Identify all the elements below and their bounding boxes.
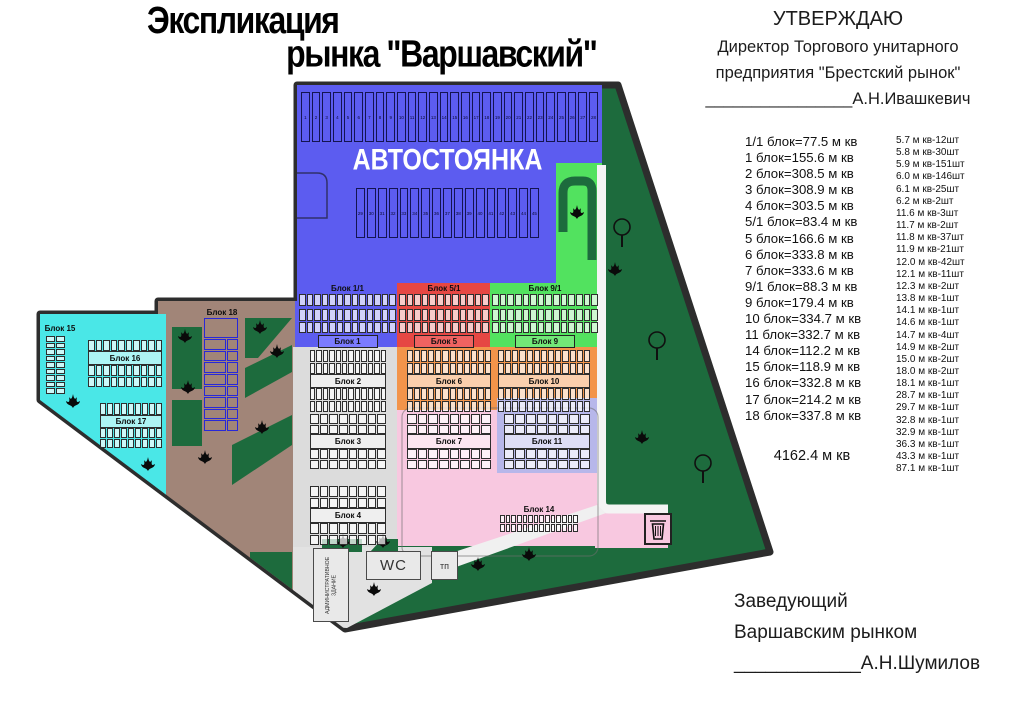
stall-cell <box>418 414 428 424</box>
stall-cell <box>310 460 319 470</box>
stall-cell <box>584 294 591 306</box>
stall-cell <box>141 340 148 351</box>
stall-cell <box>307 322 314 334</box>
stall-cell <box>573 515 578 523</box>
stall-cell <box>407 414 417 424</box>
stall-cell <box>523 309 530 321</box>
stall-cell <box>548 414 558 424</box>
stall-cell <box>310 486 319 497</box>
stall-cell <box>148 377 155 388</box>
stall-cell <box>414 309 421 321</box>
stall-cell <box>227 339 238 350</box>
stall-cell <box>568 515 573 523</box>
block-3: Блок 3 <box>310 414 386 469</box>
stall-cell <box>368 460 377 470</box>
list-line: 14.7 м кв-4шт <box>896 330 965 342</box>
stall-cell <box>526 414 536 424</box>
stall-cell <box>485 350 491 362</box>
stall-cell <box>414 294 421 306</box>
stall-cell <box>339 425 348 435</box>
stall-cell <box>471 388 477 400</box>
stall-cell <box>460 309 467 321</box>
stall-cell <box>498 388 504 400</box>
stall-cell <box>323 363 328 375</box>
stall-cell <box>377 486 386 497</box>
stall-cell <box>580 414 590 424</box>
stall-cell <box>407 425 417 435</box>
list-line: 7 блок=333.6 м кв <box>745 263 861 279</box>
list-line: 6 блок=333.8 м кв <box>745 247 861 263</box>
parking-stall: 38 <box>454 188 463 238</box>
stall-cell <box>135 428 141 438</box>
stall-cell <box>528 515 533 523</box>
stall-cell <box>339 498 348 509</box>
list-line: 87.1 м кв-1шт <box>896 463 965 475</box>
stall-cell <box>320 535 329 546</box>
stall-cell <box>368 414 377 424</box>
stall-cell <box>149 428 155 438</box>
page-title-line2: рынка "Варшавский" <box>286 38 596 72</box>
stall-cell <box>526 425 536 435</box>
stall-cell <box>46 388 55 394</box>
stall-cell <box>569 414 579 424</box>
stall-cell <box>421 363 427 375</box>
stall-cell <box>445 322 452 334</box>
stall-cell <box>517 524 522 532</box>
stall-cell <box>545 515 550 523</box>
parking-stall: 7 <box>365 92 374 142</box>
stall-cell <box>342 401 347 413</box>
stall-cell <box>450 363 456 375</box>
stall-cell <box>56 356 65 362</box>
stall-cell <box>344 322 351 334</box>
list-line: 6.1 м кв-25шт <box>896 184 965 196</box>
stall-cell <box>515 414 525 424</box>
stall-cell <box>526 460 536 470</box>
list-line: 11.8 м кв-37шт <box>896 232 965 244</box>
stall-cell <box>407 350 413 362</box>
stall-cell <box>111 340 118 351</box>
parking-stall: 31 <box>378 188 387 238</box>
stall-cell <box>515 460 525 470</box>
stall-cell <box>534 515 539 523</box>
list-line: 13.8 м кв-1шт <box>896 293 965 305</box>
stall-cell <box>452 294 459 306</box>
stall-cell <box>435 401 441 413</box>
stall-cell <box>439 425 449 435</box>
stall-cell <box>368 498 377 509</box>
stall-cell <box>471 460 481 470</box>
stall-cell <box>498 401 504 413</box>
total-area: 4162.4 м кв <box>742 448 882 464</box>
stall-cell <box>299 322 306 334</box>
list-line: 32.9 м кв-1шт <box>896 427 965 439</box>
stall-cell <box>541 388 547 400</box>
stall-cell <box>126 340 133 351</box>
stall-cell <box>320 486 329 497</box>
stall-cell <box>561 322 568 334</box>
stall-cell <box>467 309 474 321</box>
stall-cell <box>149 403 155 415</box>
stall-cell <box>56 369 65 375</box>
stall-cell <box>337 322 344 334</box>
stall-cell <box>511 515 516 523</box>
stall-cell <box>485 363 491 375</box>
list-line: 5/1 блок=83.4 м кв <box>745 214 861 230</box>
stall-cell <box>485 388 491 400</box>
parking-stall: 44 <box>519 188 528 238</box>
stall-cell <box>156 377 163 388</box>
stall-cell <box>562 388 568 400</box>
list-line: 6.2 м кв-2шт <box>896 196 965 208</box>
stall-cell <box>227 386 238 397</box>
parking-stall: 24 <box>546 92 555 142</box>
stall-cell <box>329 363 334 375</box>
parking-stall: 19 <box>493 92 502 142</box>
stall-cell <box>460 414 470 424</box>
tp-building: тп <box>431 551 458 580</box>
stall-cell <box>46 369 55 375</box>
stall-cell <box>88 377 95 388</box>
list-line: 9/1 блок=88.3 м кв <box>745 279 861 295</box>
stall-cell <box>56 343 65 349</box>
parking-stall: 28 <box>589 92 598 142</box>
approval-block: УТВЕРЖДАЮ Директор Торгового унитарного … <box>658 4 1018 112</box>
parking-stall: 29 <box>356 188 365 238</box>
stall-cell <box>460 294 467 306</box>
stall-cell <box>558 449 568 459</box>
stall-cell <box>349 535 358 546</box>
stall-cell <box>506 524 511 532</box>
stall-cell <box>314 294 321 306</box>
stall-cell <box>399 309 406 321</box>
stall-cell <box>537 449 547 459</box>
stall-cell <box>562 524 567 532</box>
stall-cell <box>569 460 579 470</box>
stall-cell <box>439 414 449 424</box>
stall-cell <box>133 377 140 388</box>
stall-cell <box>374 294 381 306</box>
stall-cell <box>310 401 315 413</box>
stall-cell <box>88 365 95 376</box>
stall-cell <box>46 336 55 342</box>
stall-cell <box>538 309 545 321</box>
list-line: 6.0 м кв-146шт <box>896 171 965 183</box>
stall-cell <box>339 486 348 497</box>
stall-cell <box>156 428 162 438</box>
block-16: Блок 16 <box>88 340 162 387</box>
list-line: 15.0 м кв-2шт <box>896 354 965 366</box>
stall-cell <box>310 449 319 459</box>
list-line: 16 блок=332.8 м кв <box>745 375 861 391</box>
list-line: 18.1 м кв-1шт <box>896 378 965 390</box>
stall-cell <box>421 350 427 362</box>
stall-cell <box>460 322 467 334</box>
stall-cell <box>498 363 504 375</box>
stall-cell <box>56 375 65 381</box>
stall-cell <box>355 350 360 362</box>
parking-stall: 9 <box>386 92 395 142</box>
stall-cell <box>407 294 414 306</box>
stall-cell <box>135 403 141 415</box>
stall-cell <box>46 349 55 355</box>
stall-cell <box>553 294 560 306</box>
list-line: 18 блок=337.8 м кв <box>745 408 861 424</box>
stall-cell <box>46 382 55 388</box>
stall-cell <box>504 425 514 435</box>
stall-cell <box>548 388 554 400</box>
stall-cell <box>512 401 518 413</box>
stall-cell <box>519 363 525 375</box>
stall-cell <box>541 363 547 375</box>
block-18-label: Блок 18 <box>200 308 244 317</box>
stall-cell <box>569 449 579 459</box>
wc-building: WC <box>366 551 421 580</box>
stall-cell <box>530 309 537 321</box>
stall-cell <box>576 294 583 306</box>
stall-cell <box>339 535 348 546</box>
stall-cell <box>528 524 533 532</box>
stall-cell <box>498 350 504 362</box>
stall-cell <box>320 523 329 534</box>
parking-stall: 8 <box>376 92 385 142</box>
stall-cell <box>555 401 561 413</box>
parking-stall: 37 <box>443 188 452 238</box>
list-line: 17 блок=214.2 м кв <box>745 392 861 408</box>
stall-cell <box>460 460 470 470</box>
stall-cell <box>381 350 386 362</box>
stall-cell <box>114 439 120 449</box>
market-plan-canvas: Экспликация рынка "Варшавский" УТВЕРЖДАЮ… <box>0 0 1024 712</box>
stall-cell <box>407 401 413 413</box>
stall-cell <box>156 365 163 376</box>
stall-cell <box>56 362 65 368</box>
stall-cell <box>368 388 373 400</box>
stall-cell <box>505 401 511 413</box>
block-1-tab: Блок 1 <box>318 335 378 348</box>
stall-cell <box>591 322 598 334</box>
stall-cell <box>320 449 329 459</box>
stall-cell <box>519 388 525 400</box>
stall-cell <box>504 414 514 424</box>
stall-cell <box>310 523 319 534</box>
stall-cell <box>382 309 389 321</box>
stall-cell <box>562 363 568 375</box>
stall-cell <box>368 401 373 413</box>
parking-stall: 2 <box>312 92 321 142</box>
stall-cell <box>204 351 226 362</box>
stall-cell <box>555 350 561 362</box>
stall-cell <box>584 350 590 362</box>
stall-cell <box>475 322 482 334</box>
list-line: 28.7 м кв-1шт <box>896 390 965 402</box>
stall-cell <box>539 515 544 523</box>
stall-cell <box>355 363 360 375</box>
stall-cell <box>418 449 428 459</box>
stall-cell <box>471 401 477 413</box>
stall-cell <box>368 363 373 375</box>
block-9-1: Блок 9/1 Блок 9 <box>492 284 598 348</box>
stall-cell <box>121 439 127 449</box>
stall-cell <box>107 428 113 438</box>
stall-cell <box>348 363 353 375</box>
stall-cell <box>377 414 386 424</box>
stall-cell <box>389 294 396 306</box>
stall-cell <box>475 294 482 306</box>
stall-cell <box>204 420 226 431</box>
stall-cell <box>377 425 386 435</box>
stall-cell <box>481 449 491 459</box>
stall-cell <box>156 439 162 449</box>
stall-cell <box>227 362 238 373</box>
stall-cell <box>118 365 125 376</box>
stall-cell <box>584 309 591 321</box>
block-17: Блок 17 <box>100 403 162 448</box>
stall-cell <box>361 363 366 375</box>
parking-stall: 16 <box>461 92 470 142</box>
stall-cell <box>452 309 459 321</box>
stall-cell <box>128 439 134 449</box>
stall-cell <box>96 377 103 388</box>
stall-cell <box>584 388 590 400</box>
stall-cell <box>580 449 590 459</box>
block-14 <box>500 515 578 532</box>
stall-cell <box>471 414 481 424</box>
stall-cell <box>329 414 338 424</box>
stall-cell <box>359 322 366 334</box>
stall-cell <box>414 401 420 413</box>
stall-cell <box>551 515 556 523</box>
stall-cell <box>556 524 561 532</box>
stall-cell <box>428 401 434 413</box>
stall-cell <box>368 350 373 362</box>
stall-cell <box>344 294 351 306</box>
stall-cell <box>482 322 489 334</box>
stall-cell <box>361 401 366 413</box>
parking-stall: 20 <box>504 92 513 142</box>
stall-cell <box>452 322 459 334</box>
stall-cell <box>512 350 518 362</box>
manager-line2: Варшавским рынком <box>734 617 980 648</box>
stall-cell <box>374 363 379 375</box>
stall-cell <box>368 523 377 534</box>
stall-cell <box>329 449 338 459</box>
stall-cell <box>204 339 226 350</box>
stall-cell <box>126 377 133 388</box>
stall-cell <box>307 309 314 321</box>
stall-cell <box>492 294 499 306</box>
stall-cell <box>227 409 238 420</box>
stall-cell <box>457 401 463 413</box>
stall-cell <box>464 350 470 362</box>
stall-cell <box>227 420 238 431</box>
parking-stall: 25 <box>557 92 566 142</box>
stall-cell <box>374 388 379 400</box>
stall-cell <box>422 294 429 306</box>
list-line: 12.3 м кв-2шт <box>896 281 965 293</box>
stall-cell <box>450 425 460 435</box>
stall-cell <box>418 460 428 470</box>
stall-cell <box>407 309 414 321</box>
block-5-1: Блок 5/1 Блок 5 <box>399 284 489 348</box>
stall-cell <box>504 449 514 459</box>
parking-stall: 40 <box>476 188 485 238</box>
stall-cell <box>467 322 474 334</box>
block-18 <box>204 318 238 431</box>
stall-cell <box>323 388 328 400</box>
stall-cell <box>320 498 329 509</box>
list-line: 2 блок=308.5 м кв <box>745 166 861 182</box>
stall-cell <box>128 403 134 415</box>
stall-cell <box>344 309 351 321</box>
stall-cell <box>156 340 163 351</box>
stall-cell <box>428 460 438 470</box>
stall-cell <box>437 309 444 321</box>
list-line: 11.9 м кв-21шт <box>896 244 965 256</box>
stall-cell <box>505 363 511 375</box>
stall-cell <box>481 460 491 470</box>
stall-cell <box>421 388 427 400</box>
list-line: 11.7 м кв-2шт <box>896 220 965 232</box>
block-5-tab: Блок 5 <box>414 335 474 348</box>
stall-cell <box>445 309 452 321</box>
stall-cell <box>399 322 406 334</box>
stall-cell <box>329 294 336 306</box>
stall-cell <box>562 515 567 523</box>
stall-cell <box>100 439 106 449</box>
stall-cell <box>561 309 568 321</box>
stall-cell <box>591 309 598 321</box>
stall-cell <box>342 350 347 362</box>
manager-block: Заведующий Варшавским рынком ___________… <box>734 586 980 679</box>
list-line: 11 блок=332.7 м кв <box>745 327 861 343</box>
parking-stall: 14 <box>440 92 449 142</box>
stall-cell <box>512 363 518 375</box>
stall-cell <box>107 439 113 449</box>
stall-cell <box>576 309 583 321</box>
stall-cell <box>538 322 545 334</box>
stall-cell <box>580 425 590 435</box>
stall-cell <box>142 439 148 449</box>
stall-cell <box>428 388 434 400</box>
stall-cell <box>358 486 367 497</box>
stall-cell <box>348 401 353 413</box>
stall-cell <box>355 401 360 413</box>
stall-cell <box>107 403 113 415</box>
stall-cell <box>548 460 558 470</box>
stall-cell <box>337 294 344 306</box>
stall-cell <box>204 409 226 420</box>
stall-cell <box>389 322 396 334</box>
stall-cell <box>523 322 530 334</box>
stall-cell <box>316 388 321 400</box>
stall-cell <box>361 350 366 362</box>
stall-cell <box>545 294 552 306</box>
stall-cell <box>558 460 568 470</box>
stall-cell <box>103 365 110 376</box>
parking-stall: 26 <box>568 92 577 142</box>
stall-cell <box>485 401 491 413</box>
stall-cell <box>323 350 328 362</box>
stall-cell <box>352 322 359 334</box>
stall-cell <box>407 363 413 375</box>
stall-cell <box>352 309 359 321</box>
stall-cell <box>442 363 448 375</box>
stall-cell <box>46 375 55 381</box>
stall-cell <box>316 363 321 375</box>
stall-cell <box>336 388 341 400</box>
stall-cell <box>377 535 386 546</box>
